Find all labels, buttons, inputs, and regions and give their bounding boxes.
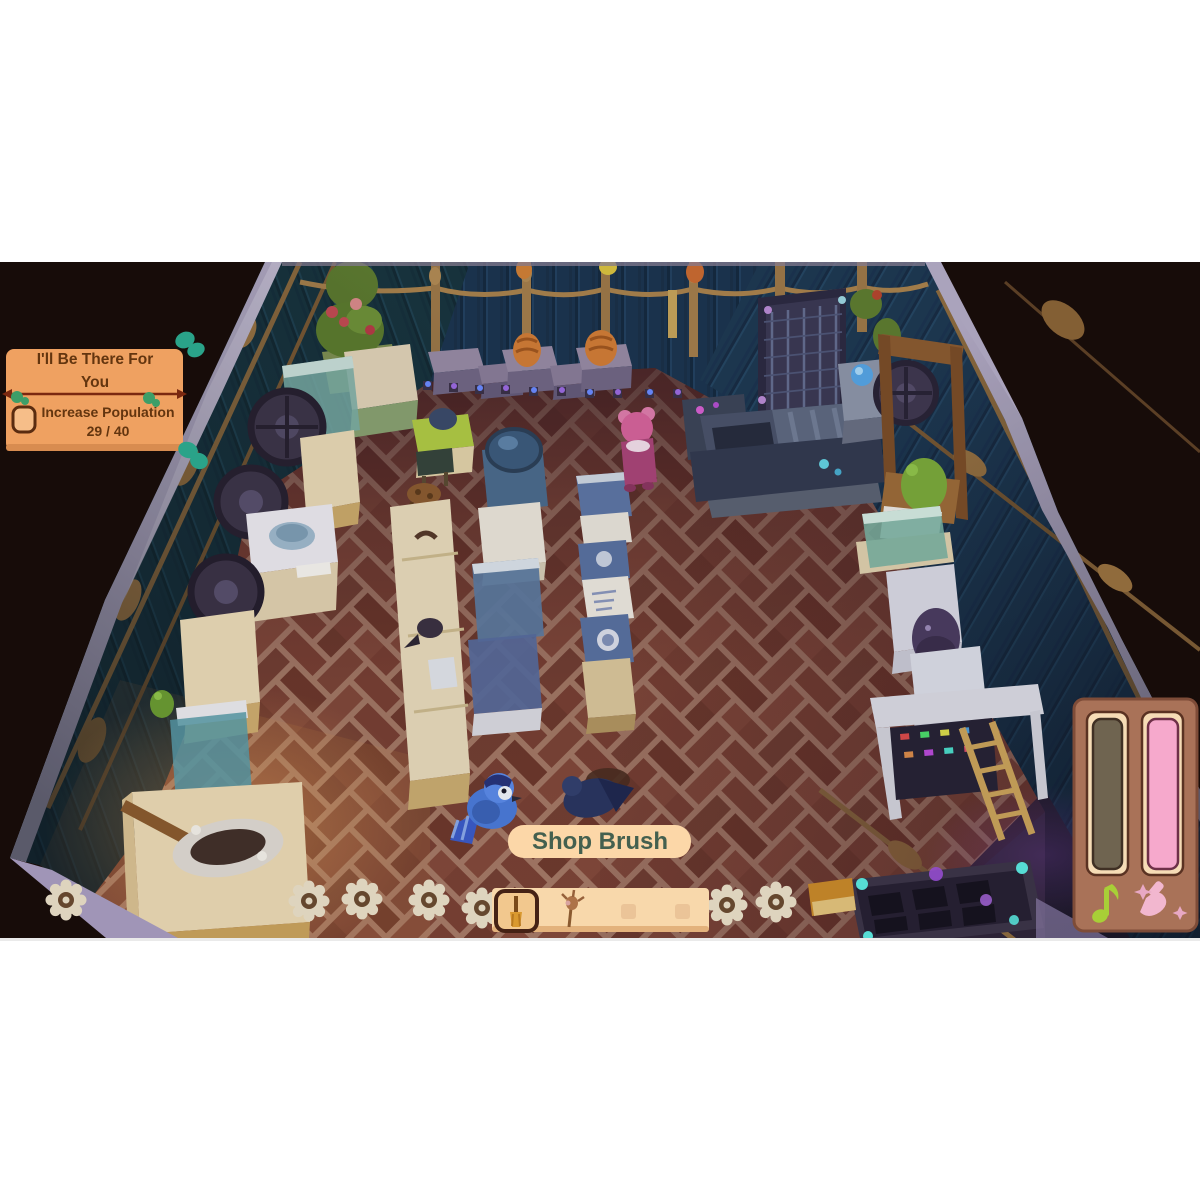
svg-text:29 / 40: 29 / 40 [87, 423, 130, 439]
svg-text:Increase Population: Increase Population [41, 404, 174, 420]
svg-text:I'll Be There For: I'll Be There For [37, 351, 154, 368]
svg-text:You: You [81, 374, 109, 391]
svg-text:Shop Brush: Shop Brush [532, 828, 668, 855]
